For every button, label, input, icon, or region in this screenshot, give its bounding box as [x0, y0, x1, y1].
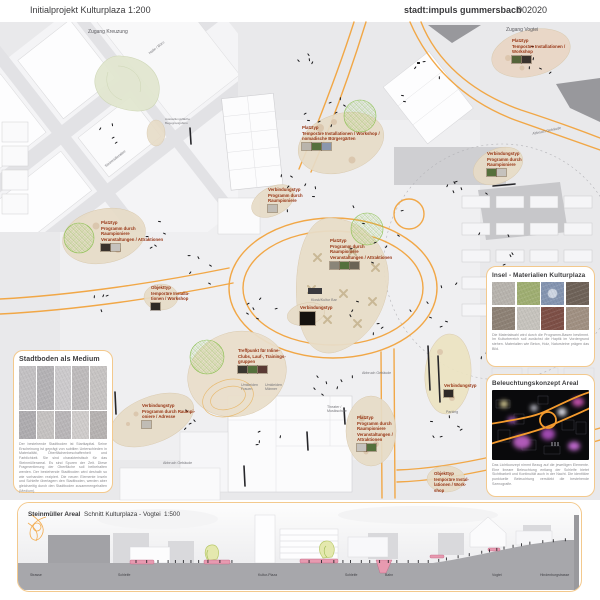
plan-label: Zugang Kreuzung [88, 29, 128, 35]
material-swatch [512, 56, 521, 63]
section-ground-label: Vogtei [492, 573, 502, 577]
material-swatches [357, 444, 393, 451]
section-ground-label: Kultur-Plaza [258, 573, 277, 577]
material-swatches [300, 312, 332, 325]
plan-label: Ausstellungsfläche Begegnungsbüro [165, 118, 190, 126]
stadtboden-texture-tile [90, 411, 107, 439]
person-mark [423, 60, 426, 61]
material-texture-tile [492, 307, 515, 330]
island-annotation: Verbindungstyp Programm durch Raumpi- on… [142, 403, 195, 428]
parking-stall [530, 196, 558, 208]
person-mark [280, 174, 282, 177]
stadtboden-texture-tile [72, 411, 89, 439]
material-swatch [238, 366, 247, 373]
material-swatches [268, 205, 303, 212]
person-mark [452, 190, 454, 193]
section-panel: Steinmüller Areal Schnitt Kulturplaza - … [17, 502, 582, 592]
material-texture-tile [517, 282, 540, 305]
person-mark [509, 254, 511, 257]
material-swatch [357, 444, 366, 451]
person-mark [257, 430, 260, 432]
material-swatch [151, 303, 160, 310]
plan-label: Umkleiden Frauen [241, 383, 258, 392]
section-ground-label: Schleife [118, 573, 130, 577]
plan-label: Abbruch Gebäude [362, 371, 391, 375]
person-mark [480, 356, 481, 359]
material-swatch [268, 205, 277, 212]
stadtboden-texture-tile [55, 366, 72, 410]
island-annotation-text: Verbindungstyp Programm durch Raumpionie… [487, 151, 522, 168]
island-annotation: Verbindungstyp Programm durch Raumpionie… [487, 151, 522, 176]
section-drawing-title: Schnitt Kulturplaza - Vogtei [84, 511, 161, 518]
material-swatch [111, 244, 120, 251]
panel-beleuchtung-title: Beleuchtungskonzept Areal [492, 380, 589, 387]
person-mark [529, 66, 530, 69]
person-mark [351, 375, 352, 378]
island-annotation: Platztyp Temporäre Installationen / Work… [512, 38, 565, 63]
island-annotation: Treffpunkt für Inline- Clubs, Lauf-, Tra… [238, 348, 286, 373]
material-swatch [322, 143, 331, 150]
island-annotation-text: Verbindungstyp Programm durch Raumpionie… [268, 187, 303, 204]
material-swatch [522, 56, 531, 63]
panel-stadtboden-caption: Der bestehende Stadtboden ist Startkapit… [19, 442, 107, 493]
parking-stall [564, 223, 592, 235]
material-texture-tile [492, 282, 515, 305]
section-ground-label: Schleife [345, 573, 357, 577]
island-annotation-text: Platztyp Programm durch Raumpioniere Ver… [357, 415, 393, 443]
material-texture-tile [517, 307, 540, 330]
island-annotation-text: Platztyp Programm durch Raumpioniere Ver… [101, 220, 163, 242]
person-mark [339, 97, 340, 100]
panel-stadtboden: Stadtboden als Medium Der bestehende Sta… [13, 350, 113, 493]
person-mark [111, 123, 113, 126]
parking-stall [496, 223, 524, 235]
island-annotation-text: Platztyp Programm durch Raumpioniere Ver… [330, 238, 392, 260]
plan-label: Abbruch Gebäude [163, 461, 192, 465]
parking-stall [564, 250, 592, 262]
person-mark [314, 186, 316, 189]
material-swatches [238, 366, 286, 373]
person-mark [430, 420, 433, 421]
section-scale: 1:500 [164, 511, 180, 518]
plan-label: Theater / Musikschule [327, 405, 347, 414]
stadtboden-texture-tile [55, 411, 72, 439]
material-texture-tile [566, 307, 589, 330]
panel-materialien-caption: Die Materialwahl wird durch die Programm… [492, 333, 589, 352]
material-swatches [512, 56, 565, 63]
parking-stall [530, 223, 558, 235]
island-annotation: Platztyp Programm durch Raumpioniere Ver… [101, 220, 163, 251]
parking-stall [564, 196, 592, 208]
stadtboden-texture-tile [19, 366, 36, 410]
parking-stall [462, 223, 490, 235]
island-annotation: Objekttyp temporäre Instal- lationen / W… [434, 471, 469, 493]
materialien-texture-grid [492, 282, 589, 330]
material-swatches [302, 143, 380, 150]
island-annotation-text: Objekttyp temporäre Installa- tionen / W… [151, 285, 189, 302]
stadtboden-texture-tile [72, 366, 89, 410]
island-annotation: Verbindungstyp Programm durch Raumpionie… [268, 187, 303, 212]
island-annotation: Verbindungstyp [444, 383, 476, 397]
island-annotation: Objekttyp temporäre Installa- tionen / W… [151, 285, 189, 310]
person-mark [417, 62, 420, 63]
panel-beleuchtung: Beleuchtungskonzept Areal Das Lichtkonze… [486, 374, 595, 497]
material-texture-tile [541, 282, 564, 305]
person-mark [340, 379, 342, 382]
material-swatch [330, 262, 339, 269]
island-annotation: Platztyp Temporäre Installationen / Work… [302, 125, 380, 150]
material-swatch [142, 421, 151, 428]
island-annotation-text: Platztyp Temporäre Installationen / Work… [512, 38, 565, 55]
island-annotation-text: Platztyp Temporäre Installationen / Work… [302, 125, 380, 142]
material-swatches [101, 244, 163, 251]
person-mark [275, 307, 278, 309]
plan-label: Parking [446, 410, 458, 414]
person-mark [93, 295, 94, 298]
panel-beleuchtung-caption: Das Lichtkonzept nimmt Bezug auf die jew… [492, 463, 589, 486]
section-ground-label: Bahn [385, 573, 393, 577]
stadtboden-texture-grid [19, 366, 107, 439]
material-swatch [302, 143, 311, 150]
person-mark [307, 120, 310, 121]
material-texture-tile [541, 307, 564, 330]
material-swatches [151, 303, 189, 310]
material-swatch [367, 444, 376, 451]
stadtboden-texture-tile [37, 411, 54, 439]
island-annotation: Platztyp Programm durch Raumpioniere Ver… [357, 415, 393, 451]
island-annotation-text: Verbindungstyp [300, 305, 332, 311]
person-mark [100, 309, 102, 312]
person-mark [325, 381, 327, 384]
stadtboden-texture-tile [19, 411, 36, 439]
material-swatch [312, 143, 321, 150]
material-swatch [350, 262, 359, 269]
material-swatch [101, 244, 110, 251]
person-mark [439, 76, 440, 79]
plan-label: Kiosk/Kultur Bar [311, 298, 337, 302]
material-swatches [487, 169, 522, 176]
section-ground-label: Hindenburgstrasse [540, 573, 569, 577]
panel-materialien: Insel - Materialien Kulturplaza Die Mate… [486, 266, 595, 367]
material-swatches [142, 421, 195, 428]
material-swatch [248, 366, 257, 373]
person-mark [449, 416, 450, 419]
person-mark [309, 58, 310, 61]
material-swatches [330, 262, 392, 269]
parking-stall [496, 196, 524, 208]
island-annotation-text: Verbindungstyp Programm durch Raumpi- on… [142, 403, 195, 420]
material-texture-tile [566, 282, 589, 305]
island-annotation: Platztyp Programm durch Raumpioniere Ver… [330, 238, 392, 269]
material-swatch [497, 169, 506, 176]
poster-page: { "header": { "title": "Initialprojekt K… [0, 0, 600, 600]
material-swatch [258, 366, 267, 373]
parking-stall [462, 196, 490, 208]
night-lighting-image [492, 390, 589, 460]
section-area-title: Steinmüller Areal [28, 511, 80, 518]
material-swatches [444, 390, 476, 397]
parking-stall [462, 250, 490, 262]
person-mark [188, 255, 191, 256]
material-swatch [487, 169, 496, 176]
material-swatch [300, 312, 315, 325]
stadtboden-texture-tile [37, 366, 54, 410]
island-annotation: Verbindungstyp [300, 305, 332, 325]
material-swatch [340, 262, 349, 269]
plan-label: Umkleiden Männer [265, 383, 282, 392]
stadtboden-texture-tile [90, 366, 107, 410]
material-swatch [444, 390, 453, 397]
panel-stadtboden-title: Stadtboden als Medium [19, 356, 107, 363]
island-annotation-text: Objekttyp temporäre Instal- lationen / W… [434, 471, 469, 493]
section-ground-label: Strasse [30, 573, 42, 577]
parking-stall [530, 250, 558, 262]
panel-materialien-title: Insel - Materialien Kulturplaza [492, 272, 589, 279]
person-mark [362, 222, 365, 224]
plan-label: Zugang Vogtei [506, 27, 538, 33]
island-annotation-text: Treffpunkt für Inline- Clubs, Lauf-, Tra… [238, 348, 286, 365]
island-annotation-text: Verbindungstyp [444, 383, 476, 389]
